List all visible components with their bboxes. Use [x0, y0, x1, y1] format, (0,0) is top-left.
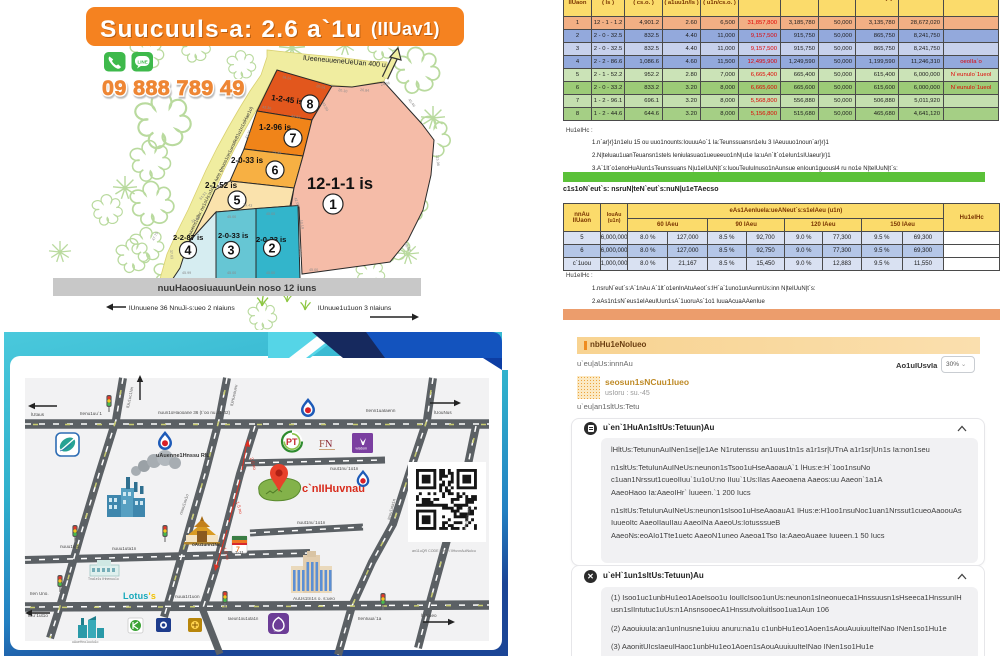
svg-text:2-1-52 is: 2-1-52 is — [205, 181, 238, 190]
svg-text:lUouNus: lUouNus — [434, 410, 452, 415]
svg-text:2-0-33 is: 2-0-33 is — [218, 231, 248, 240]
svg-text:24.96: 24.96 — [380, 81, 390, 87]
svg-text:74.00: 74.00 — [298, 248, 302, 257]
svg-text:4: 4 — [185, 244, 192, 258]
svg-text:FN: FN — [319, 439, 333, 450]
svg-text:lUnuue1u1uon 3 nlaiuns: lUnuue1u1uon 3 nlaiuns — [318, 305, 392, 312]
svg-text:7-11: 7-11 — [235, 550, 244, 555]
svg-text:8: 8 — [307, 98, 314, 112]
svg-text:uAueHno1uuIu1o: uAueHno1uuIu1o — [72, 640, 99, 644]
svg-text:IIen Uno.: IIen Uno. — [30, 591, 49, 596]
svg-text:nuut1nu`1o1n: nuut1nu`1o1n — [297, 520, 326, 525]
svg-text:nuuHaoosiuauunUein noso 12 iun: nuuHaoosiuauunUein noso 12 iuns — [158, 283, 317, 294]
svg-text:nuun1oHaooane 36 (t`oo nu.41-4: nuun1oHaooane 36 (t`oo nu.41-42) — [158, 410, 230, 415]
svg-text:26.84: 26.84 — [360, 88, 370, 93]
svg-text:39.43: 39.43 — [243, 203, 253, 208]
svg-text:37.63: 37.63 — [169, 250, 174, 260]
svg-text:Suucuuls-a: 2.6 a`1u: Suucuuls-a: 2.6 a`1u — [100, 16, 362, 43]
svg-text:Lotus's: Lotus's — [123, 591, 156, 601]
svg-text:3: 3 — [228, 244, 235, 258]
svg-text:45.00: 45.00 — [266, 271, 275, 275]
svg-text:nuuu1ut1: nuuu1ut1 — [60, 544, 80, 549]
svg-text:LINE: LINE — [138, 60, 148, 65]
svg-text:IIenIuua`1a: IIenIuua`1a — [358, 616, 382, 621]
svg-text:1-2-96 is: 1-2-96 is — [259, 123, 292, 132]
svg-text:wisdom: wisdom — [356, 447, 368, 451]
svg-text:PT: PT — [286, 437, 298, 447]
svg-text:7: 7 — [290, 132, 297, 146]
svg-text:nuut1nu`1o1n: nuut1nu`1o1n — [330, 466, 359, 471]
svg-text:2-0-33 is: 2-0-33 is — [231, 156, 264, 165]
svg-text:Tna1e1s IHnenuu1o: Tna1e1s IHnenuu1o — [88, 577, 119, 581]
svg-text:lUtaus: lUtaus — [31, 412, 45, 417]
svg-text:45.46: 45.46 — [407, 98, 416, 108]
svg-text:SCB: SCB — [274, 629, 282, 633]
svg-text:2-2-87 is: 2-2-87 is — [173, 233, 203, 242]
svg-text:45.99: 45.99 — [182, 271, 191, 275]
svg-text:5: 5 — [234, 194, 241, 208]
svg-text:c`nIIHuvnau: c`nIIHuvnau — [302, 483, 365, 495]
svg-text:6: 6 — [272, 164, 279, 178]
svg-text:nuua1r1uon: nuua1r1uon — [175, 594, 200, 599]
svg-text:IIenu1uu`1: IIenu1uu`1 — [80, 411, 102, 416]
svg-text:45.00: 45.00 — [266, 212, 275, 216]
svg-text:IIenn1uaIaenn: IIenn1uaIaenn — [366, 408, 396, 413]
svg-text:1: 1 — [329, 196, 337, 212]
svg-text:nuuu1uta1n: nuuu1uta1n — [112, 546, 137, 551]
svg-text:Iaeun1ou1uta1n: Iaeun1ou1uta1n — [228, 616, 259, 621]
svg-text:AuUs1tn1s o. s:ueo: AuUs1tn1s o. s:ueo — [293, 596, 335, 602]
svg-text:09 888 789 49: 09 888 789 49 — [102, 76, 245, 100]
svg-text:oAu1unn1Nn: oAu1unn1Nn — [192, 542, 221, 547]
svg-text:45.00: 45.00 — [227, 215, 236, 219]
svg-text:lUnuuene 36 NnuJi-s:ueo 2 nlai: lUnuuene 36 NnuJi-s:ueo 2 nlaiuns — [129, 305, 235, 312]
svg-text:(IIUav1): (IIUav1) — [371, 19, 440, 39]
svg-text:115.98: 115.98 — [435, 155, 440, 166]
svg-text:45.00: 45.00 — [309, 268, 318, 272]
svg-text:2: 2 — [269, 242, 276, 256]
svg-text:45.00: 45.00 — [227, 271, 236, 275]
svg-text:uAuenne1Hnssu RIL: uAuenne1Hnssu RIL — [156, 453, 210, 459]
svg-text:an11uQR CODE INeAn`IIHuvnAuINu: an11uQR CODE INeAn`IIHuvnAuINuIcu — [412, 549, 476, 553]
svg-text:12-1-1 is: 12-1-1 is — [307, 175, 373, 193]
svg-text:lUs:ueo: lUs:ueo — [421, 613, 437, 618]
